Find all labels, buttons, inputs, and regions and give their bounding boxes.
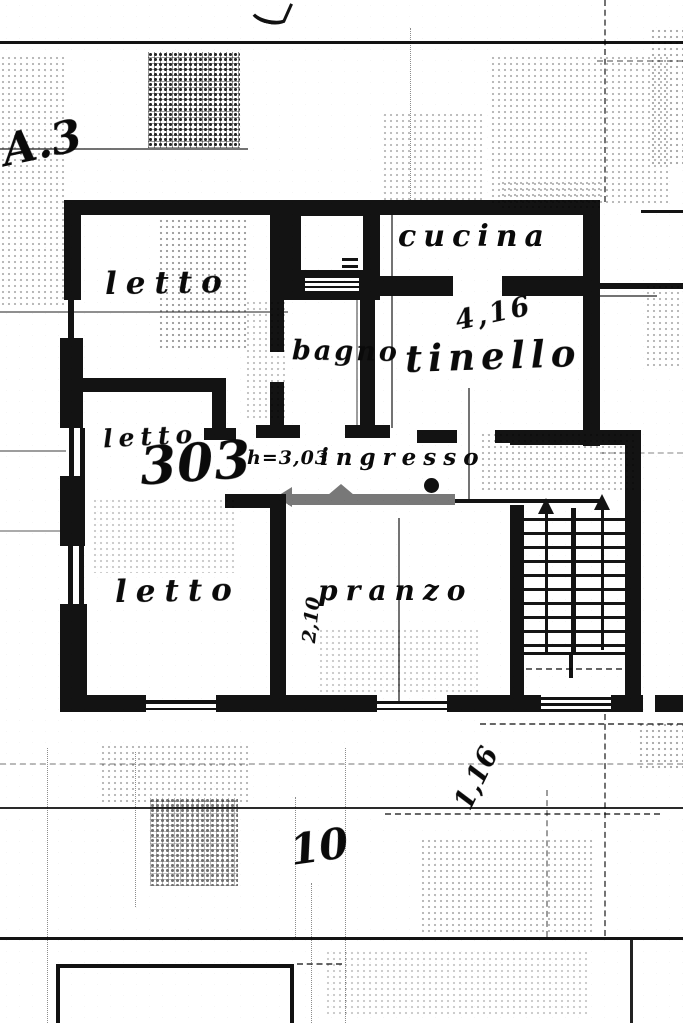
scan-line bbox=[0, 763, 683, 765]
scan-line bbox=[0, 41, 683, 44]
wall-bottom bbox=[216, 695, 377, 712]
stair-up-arrow bbox=[594, 494, 610, 510]
stair-wall-right bbox=[625, 430, 641, 712]
scan-line bbox=[0, 937, 683, 940]
floorplan-scan: A.3 letto cucina 4,16 tinello bagno lett… bbox=[0, 0, 683, 1023]
wall-right bbox=[583, 200, 600, 446]
scan-noise bbox=[490, 55, 668, 203]
scan-line bbox=[600, 452, 683, 454]
scan-line bbox=[0, 311, 288, 313]
room-label-tinello: tinello bbox=[404, 335, 582, 378]
scan-line bbox=[311, 883, 312, 1023]
scan-line bbox=[297, 963, 342, 965]
stair-rail bbox=[601, 510, 604, 650]
stair-landing-dashes bbox=[526, 668, 622, 670]
room-label-letto-top: letto bbox=[105, 267, 231, 300]
wall-ingresso-top bbox=[417, 430, 457, 443]
scan-noise bbox=[0, 55, 66, 305]
scan-line bbox=[47, 748, 48, 1023]
wall-left bbox=[60, 476, 85, 546]
window-marker bbox=[146, 700, 216, 704]
entrance-door-peak bbox=[328, 484, 354, 495]
room-number-303: 303 bbox=[138, 434, 253, 494]
scan-noise bbox=[100, 744, 250, 802]
ink-blob bbox=[424, 478, 439, 493]
stair-landing-stub bbox=[569, 652, 573, 678]
scan-line bbox=[0, 450, 66, 452]
scan-line bbox=[398, 518, 400, 703]
scan-noise bbox=[650, 28, 683, 168]
wall-stub bbox=[600, 283, 683, 289]
entrance-door-mark bbox=[288, 494, 455, 505]
scan-noise bbox=[420, 838, 595, 933]
stair-divider bbox=[571, 508, 576, 652]
wall-ingresso-bottom-line bbox=[455, 499, 601, 503]
window-marker bbox=[541, 697, 611, 700]
wall-left-thin bbox=[68, 300, 74, 340]
window-marker bbox=[68, 546, 73, 604]
wall-bottom bbox=[655, 695, 683, 712]
dim-right-offset: 1,16 bbox=[450, 743, 503, 814]
scan-noise bbox=[150, 798, 238, 886]
wall-bagno-left bbox=[270, 215, 284, 352]
shaft-vent-hatch bbox=[305, 276, 359, 292]
shaft-opening bbox=[301, 216, 363, 270]
window-marker bbox=[79, 546, 84, 604]
scan-line bbox=[391, 215, 393, 428]
scan-line bbox=[546, 790, 548, 937]
wall-left bbox=[64, 200, 81, 300]
scan-line bbox=[630, 940, 633, 1023]
wall-bagno-left bbox=[270, 382, 284, 427]
scan-line bbox=[135, 752, 136, 907]
wall-stub-line bbox=[600, 295, 657, 297]
wall-bottom bbox=[447, 695, 541, 712]
scan-line bbox=[604, 714, 606, 936]
stair-wall-left bbox=[510, 505, 524, 712]
window-marker bbox=[146, 708, 216, 710]
window-marker bbox=[541, 709, 611, 712]
scan-line bbox=[597, 60, 683, 62]
wall-flange bbox=[345, 425, 390, 438]
stair-rail bbox=[545, 514, 548, 654]
window-marker bbox=[377, 708, 447, 710]
dim-tinello: 4,16 bbox=[453, 292, 535, 335]
scan-line bbox=[604, 0, 606, 202]
window-marker bbox=[69, 428, 74, 476]
room-label-letto-bottom: letto bbox=[115, 575, 241, 608]
stair-wall-top bbox=[510, 430, 641, 445]
ingresso-height-note: h=3,03 bbox=[247, 449, 329, 468]
window-marker bbox=[377, 701, 447, 704]
scan-noise bbox=[148, 52, 240, 148]
plan-reference-label: A.3 bbox=[0, 114, 86, 174]
wall-stub bbox=[641, 210, 683, 213]
scan-noise bbox=[325, 950, 590, 1015]
wall-bottom bbox=[60, 695, 146, 712]
stair-landing-line bbox=[524, 652, 625, 655]
room-label-pranzo: pranzo bbox=[318, 577, 473, 605]
wall-letto-top-bottom bbox=[64, 378, 226, 392]
lower-plan-outline bbox=[56, 964, 294, 1023]
scan-line bbox=[385, 813, 660, 815]
window-marker bbox=[541, 703, 611, 706]
window-marker bbox=[342, 258, 358, 261]
scan-noise bbox=[382, 112, 482, 204]
wall-cucina-tinello bbox=[365, 276, 453, 296]
wall-pranzo-left bbox=[270, 494, 286, 712]
scan-noise bbox=[92, 498, 237, 573]
scan-line bbox=[410, 28, 411, 206]
scan-line bbox=[0, 530, 62, 532]
scan-line bbox=[480, 723, 683, 725]
stair-up-arrow bbox=[538, 498, 554, 514]
sheet-number: 10 bbox=[287, 822, 351, 872]
room-label-ingresso: ingresso bbox=[320, 446, 486, 469]
room-label-cucina: cucina bbox=[398, 222, 551, 252]
room-label-bagno: bagno bbox=[292, 337, 400, 366]
scan-line bbox=[0, 807, 683, 809]
window-marker bbox=[342, 265, 358, 268]
scan-line bbox=[345, 748, 346, 1023]
wall-flange bbox=[256, 425, 300, 438]
window-marker bbox=[80, 428, 85, 476]
